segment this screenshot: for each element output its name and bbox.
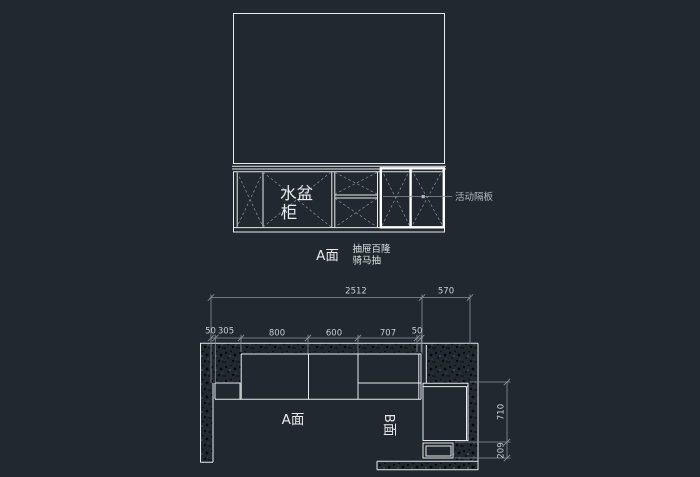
elevation-backsplash-outline[interactable] (234, 14, 445, 164)
shelf-leader-label[interactable]: 活动隔板 (455, 191, 494, 203)
sink-cabinet-label-line2[interactable]: 柜 (281, 203, 298, 222)
drawer-note-line2[interactable]: 骑马抽 (353, 255, 382, 267)
dim-toe-b[interactable]: 209 (497, 442, 507, 458)
drawer-note-line1[interactable]: 抽屉百隆 (353, 243, 392, 255)
dim-seg-305[interactable]: 305 (218, 327, 234, 337)
dim-depth-b[interactable]: 710 (497, 404, 507, 420)
dim-seg-600[interactable]: 600 (326, 329, 342, 339)
cabinet-run-a-outline[interactable] (215, 354, 421, 399)
dim-seg-800[interactable]: 800 (269, 329, 285, 339)
dim-total-width[interactable]: 2512 (345, 287, 367, 297)
cad-canvas[interactable]: 水盆 柜 A面 抽屉百隆 骑马抽 活动隔板 2512 570 (0, 0, 700, 477)
dim-right-width[interactable]: 570 (438, 287, 454, 297)
dim-seg-50-right[interactable]: 50 (412, 327, 423, 337)
sink-cabinet-label-line1[interactable]: 水盆 (280, 184, 313, 203)
dim-seg-50-left[interactable]: 50 (205, 327, 216, 337)
plan-face-a-label[interactable]: A面 (282, 412, 305, 428)
elevation-view: 水盆 柜 A面 抽屉百隆 骑马抽 活动隔板 (232, 14, 494, 267)
plan-view: 2512 570 50 305 800 600 707 50 710 209 A… (200, 287, 511, 471)
plan-face-b-label[interactable]: B面 (381, 414, 397, 437)
selected-section-frame[interactable] (381, 168, 444, 227)
elevation-face-label[interactable]: A面 (316, 248, 339, 264)
dim-seg-707[interactable]: 707 (380, 329, 396, 339)
shelf-leader-dot (422, 195, 425, 198)
